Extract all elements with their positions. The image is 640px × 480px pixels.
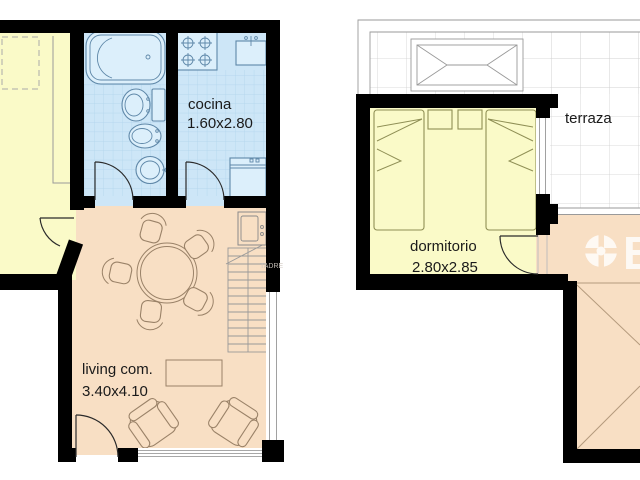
void-fill [577, 283, 640, 449]
bidet [129, 124, 161, 148]
living-size: 3.40x4.10 [82, 383, 148, 400]
nightstand [458, 110, 482, 129]
kitchen-size: 1.60x2.80 [187, 115, 253, 132]
bathtub [86, 31, 165, 84]
bed [486, 110, 536, 230]
stove [177, 32, 217, 70]
bedroom-label: dormitorio [410, 238, 477, 255]
plan-lower-floor: cocina 1.60x2.80 living com. 3.40x4.10 T… [0, 20, 284, 462]
laundry-sink [238, 212, 266, 245]
window-bedroom [536, 118, 550, 194]
kitchen-label: cocina [188, 96, 232, 113]
terrace-label: terraza [565, 110, 612, 127]
living-label: living com. [82, 361, 153, 378]
floor-plan-page: cocina 1.60x2.80 living com. 3.40x4.10 T… [0, 0, 640, 480]
window-living-south [138, 448, 262, 460]
bed [374, 110, 424, 230]
floor-plan-svg: cocina 1.60x2.80 living com. 3.40x4.10 T… [0, 0, 640, 480]
plan-upper-floor: terraza dormitorio 2.80x2.85 B [356, 20, 640, 463]
watermark-faint-text: TADRE [260, 263, 284, 270]
watermark-letter: B [623, 227, 640, 279]
room-bedroom-left-fill [0, 28, 76, 280]
toilet [122, 89, 165, 121]
window-living-east [266, 292, 280, 440]
skylight [411, 39, 523, 91]
nightstand [428, 110, 452, 129]
bedroom-size: 2.80x2.85 [412, 259, 478, 276]
fridge [230, 158, 266, 198]
